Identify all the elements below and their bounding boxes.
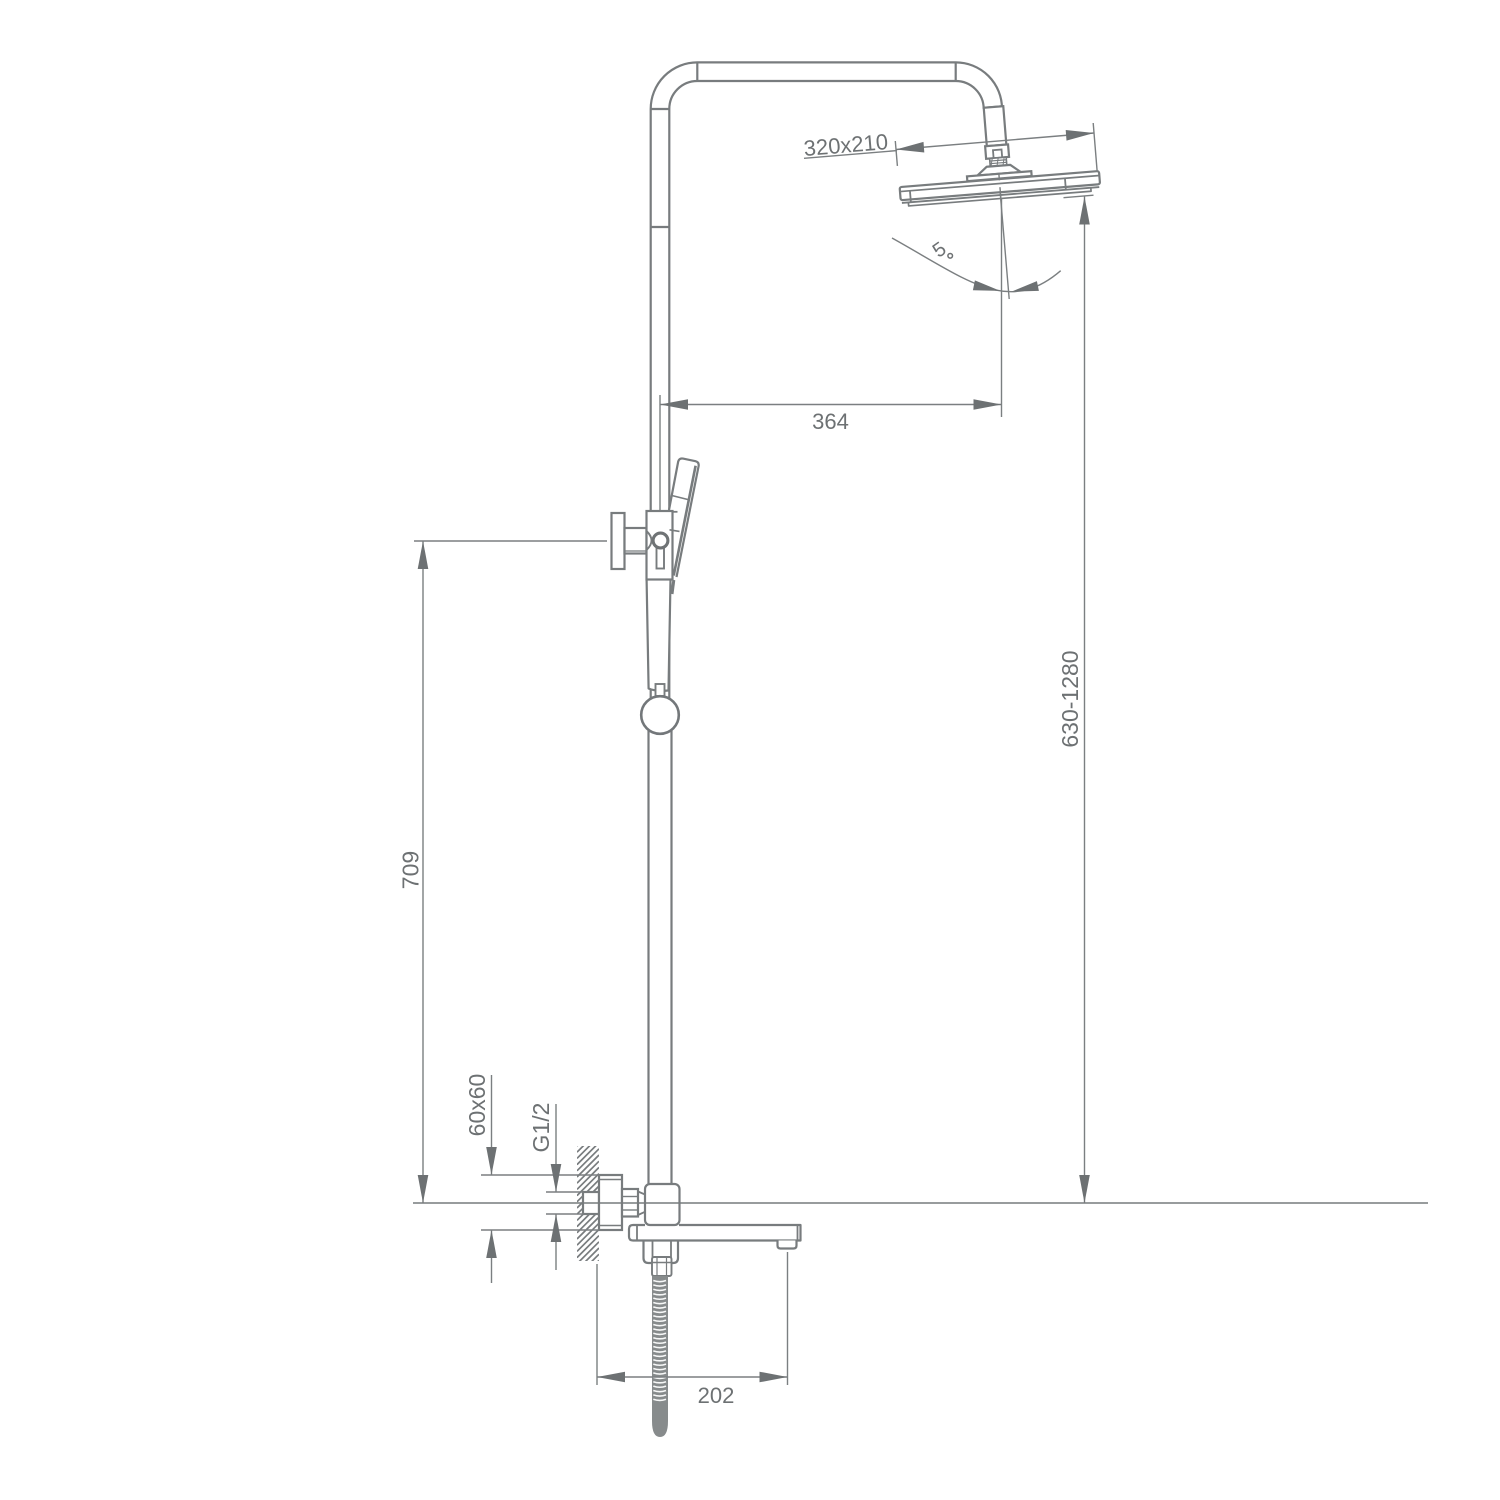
- svg-text:630-1280: 630-1280: [1057, 650, 1083, 747]
- svg-text:320x210: 320x210: [803, 129, 889, 161]
- svg-text:364: 364: [812, 409, 849, 434]
- svg-text:709: 709: [398, 851, 424, 889]
- svg-text:202: 202: [698, 1383, 735, 1408]
- svg-text:60x60: 60x60: [464, 1074, 490, 1137]
- svg-text:G1/2: G1/2: [528, 1103, 554, 1153]
- svg-text:5: 5: [929, 238, 951, 262]
